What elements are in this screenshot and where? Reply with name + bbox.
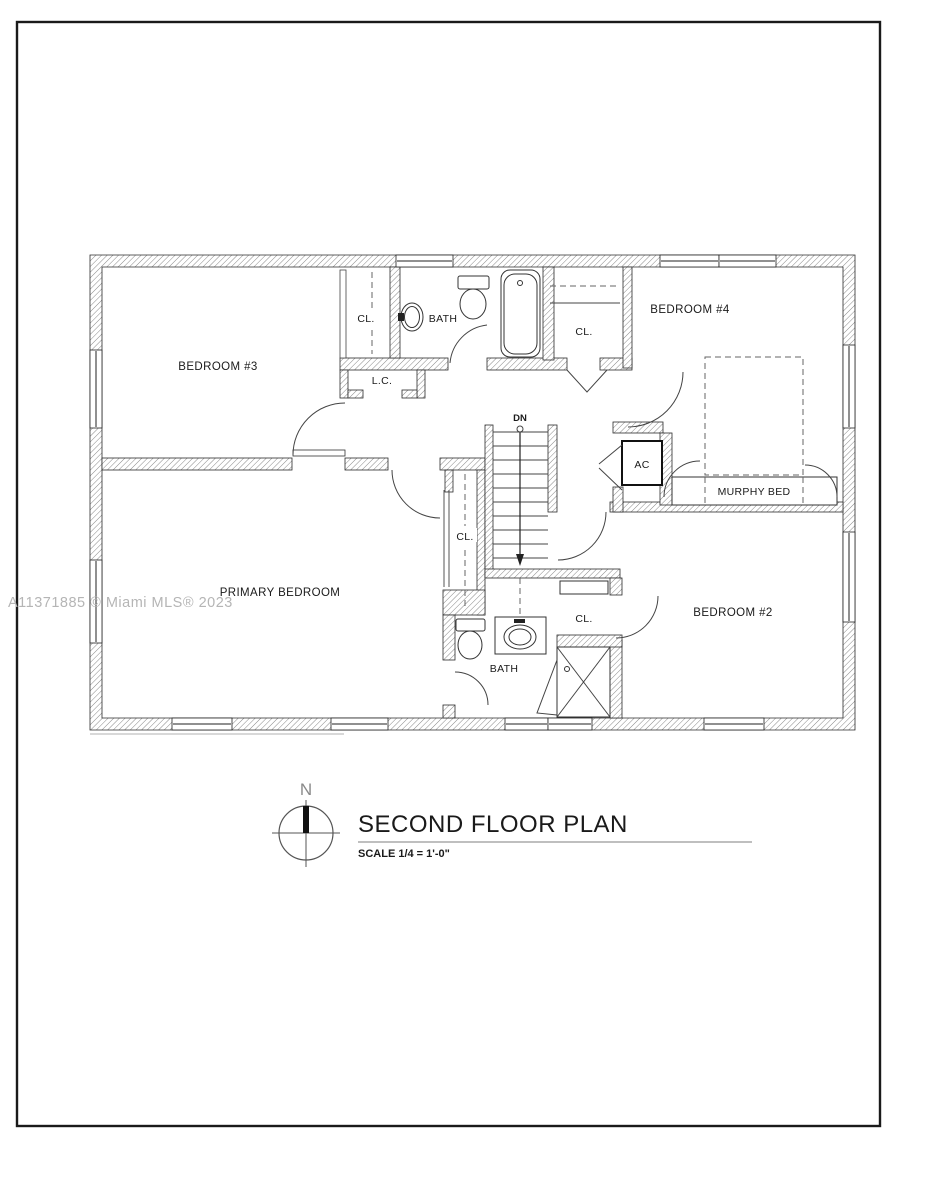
- door-leaf: [293, 450, 345, 456]
- north-label: N: [300, 780, 312, 799]
- room-label-bedroom-3: BEDROOM #3: [178, 361, 257, 373]
- room-label-bedroom-2: BEDROOM #2: [693, 607, 772, 619]
- window: [548, 718, 592, 730]
- toilet-tank: [456, 619, 485, 631]
- window: [704, 718, 764, 730]
- window: [660, 255, 719, 267]
- window: [172, 718, 232, 730]
- toilet-fixture: [458, 631, 482, 659]
- bedroom3-closet-front: [340, 270, 346, 358]
- closet-label: CL.: [357, 313, 374, 325]
- north-needle: [303, 806, 309, 833]
- room-label-bath-lower: BATH: [490, 663, 518, 675]
- shower-drain-icon: [565, 667, 570, 672]
- toilet-tank: [458, 276, 489, 289]
- stair-start-marker: [517, 426, 523, 432]
- room-label-bath-upper: BATH: [429, 313, 457, 325]
- murphy-bed-label: MURPHY BED: [718, 486, 791, 498]
- closet-label: CL.: [575, 613, 592, 625]
- tub-drain-icon: [518, 281, 523, 286]
- window: [719, 255, 776, 267]
- window: [396, 255, 453, 267]
- window: [505, 718, 548, 730]
- faucet-icon: [398, 313, 404, 321]
- window: [843, 345, 855, 428]
- room-label-primary-bedroom: PRIMARY BEDROOM: [220, 587, 341, 599]
- room-label-bedroom-4: BEDROOM #4: [650, 304, 730, 316]
- plan-title: SECOND FLOOR PLAN: [358, 811, 628, 838]
- faucet-icon: [514, 619, 525, 623]
- closet-shelf: [560, 581, 608, 594]
- linen-closet-label: L.C.: [372, 375, 392, 387]
- window: [90, 350, 102, 428]
- ac-label: AC: [634, 459, 649, 471]
- window: [843, 532, 855, 622]
- closet-label: CL.: [456, 531, 473, 543]
- window: [331, 718, 388, 730]
- stairs-down-label: DN: [513, 413, 527, 424]
- toilet-fixture: [460, 289, 486, 319]
- plan-scale: SCALE 1/4 = 1'-0": [358, 848, 450, 860]
- mls-watermark: A11371885 © Miami MLS® 2023: [8, 595, 233, 611]
- floor-plan-sheet: DN MURPHY BED AC: [0, 0, 927, 1200]
- murphy-bed-cabinet: MURPHY BED: [672, 477, 837, 505]
- closet-label: CL.: [575, 326, 592, 338]
